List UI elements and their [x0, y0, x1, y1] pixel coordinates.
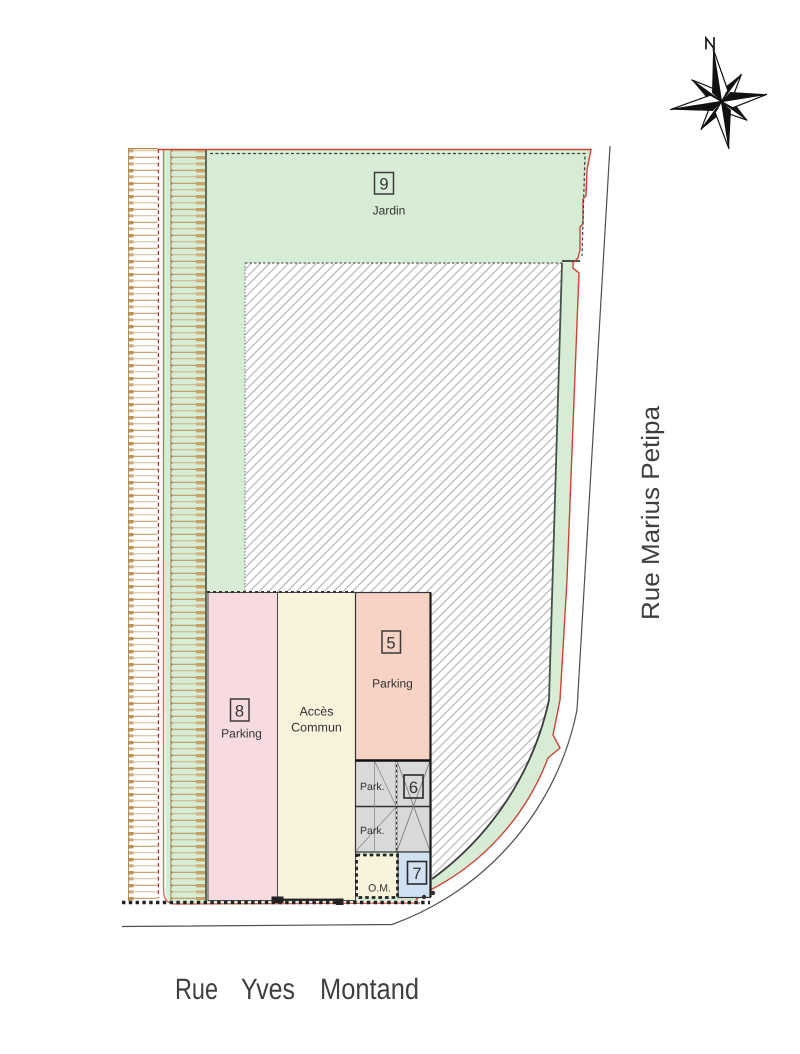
svg-text:5: 5: [386, 635, 395, 653]
svg-text:Park.: Park.: [360, 825, 385, 837]
svg-text:Jardin: Jardin: [373, 204, 406, 218]
svg-text:Accès: Accès: [299, 705, 333, 719]
svg-text:Rue: Rue: [175, 973, 218, 1006]
svg-text:Commun: Commun: [291, 721, 342, 735]
svg-text:7: 7: [412, 865, 421, 883]
svg-text:8: 8: [235, 703, 244, 721]
svg-text:Parking: Parking: [372, 677, 413, 691]
svg-text:9: 9: [379, 176, 388, 194]
svg-text:O.M.: O.M.: [368, 883, 391, 895]
svg-text:Rue Marius Petipa: Rue Marius Petipa: [637, 406, 665, 620]
svg-text:Park.: Park.: [360, 781, 385, 793]
svg-text:Yves: Yves: [241, 973, 295, 1006]
svg-text:6: 6: [409, 779, 418, 797]
svg-text:Parking: Parking: [221, 727, 262, 741]
svg-text:Montand: Montand: [320, 973, 419, 1006]
